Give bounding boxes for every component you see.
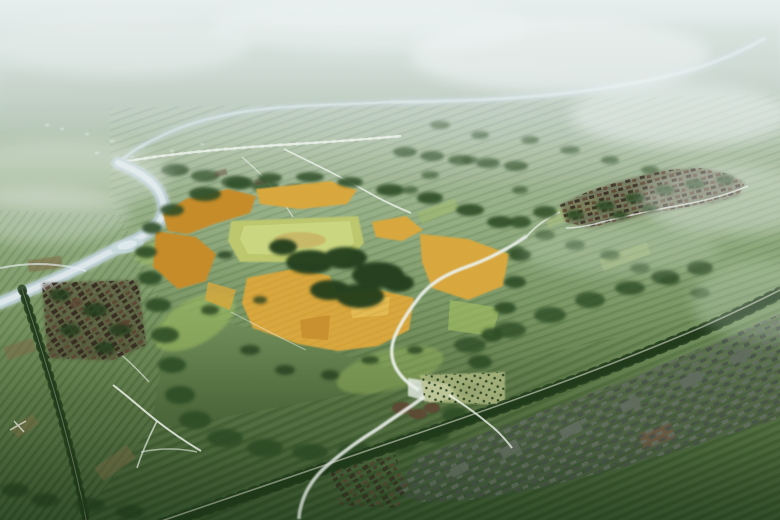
tree-blob <box>135 246 157 258</box>
tree-blob <box>417 192 443 204</box>
tree-blob <box>534 307 566 323</box>
bottom-vignette <box>0 430 780 520</box>
tree-blob <box>217 251 233 259</box>
tree-blob <box>179 411 211 429</box>
tree-blob <box>165 386 195 404</box>
tree-blob <box>321 370 339 380</box>
tree-blob <box>201 305 219 315</box>
tree-blob <box>253 296 267 304</box>
tree-blob <box>509 216 531 228</box>
aerial-rendering-canvas <box>0 0 780 520</box>
left-village <box>42 280 146 360</box>
tree-blob <box>109 324 131 336</box>
tree-blob <box>504 276 526 288</box>
tree-blob <box>158 357 186 373</box>
tree-blob <box>95 342 115 354</box>
tree-blob <box>494 322 526 338</box>
tree-blob <box>468 355 492 369</box>
tree-blob <box>151 327 179 343</box>
aerial-rendering <box>0 0 780 520</box>
tree-blob <box>409 409 427 419</box>
tree-blob <box>407 346 423 354</box>
tree-blob <box>60 324 80 336</box>
fog-cloud <box>570 83 780 147</box>
tree-blob <box>575 292 605 308</box>
tree-blob <box>142 222 162 234</box>
tree-blob <box>456 204 484 216</box>
tree-blob <box>269 239 297 255</box>
tree-blob <box>533 206 557 218</box>
fog-cloud <box>0 15 250 75</box>
tree-blob <box>615 281 645 295</box>
tree-blob <box>310 280 350 300</box>
tree-blob <box>612 211 628 219</box>
tree-blob <box>566 210 584 220</box>
tree-blob <box>454 337 486 353</box>
tree-blob <box>138 271 162 285</box>
tree-blob <box>83 303 107 317</box>
tree-blob <box>275 365 295 375</box>
fog-cloud <box>520 225 720 275</box>
tree-blob <box>494 302 516 314</box>
tree-blob <box>361 356 379 364</box>
tree-blob <box>382 274 414 292</box>
orchard-trees <box>420 372 505 405</box>
tree-blob <box>595 201 615 211</box>
tree-blob <box>240 345 260 355</box>
tree-blob <box>424 403 440 413</box>
tree-blob <box>145 298 171 312</box>
tree-blob <box>160 204 184 216</box>
tree-blob <box>50 289 70 301</box>
